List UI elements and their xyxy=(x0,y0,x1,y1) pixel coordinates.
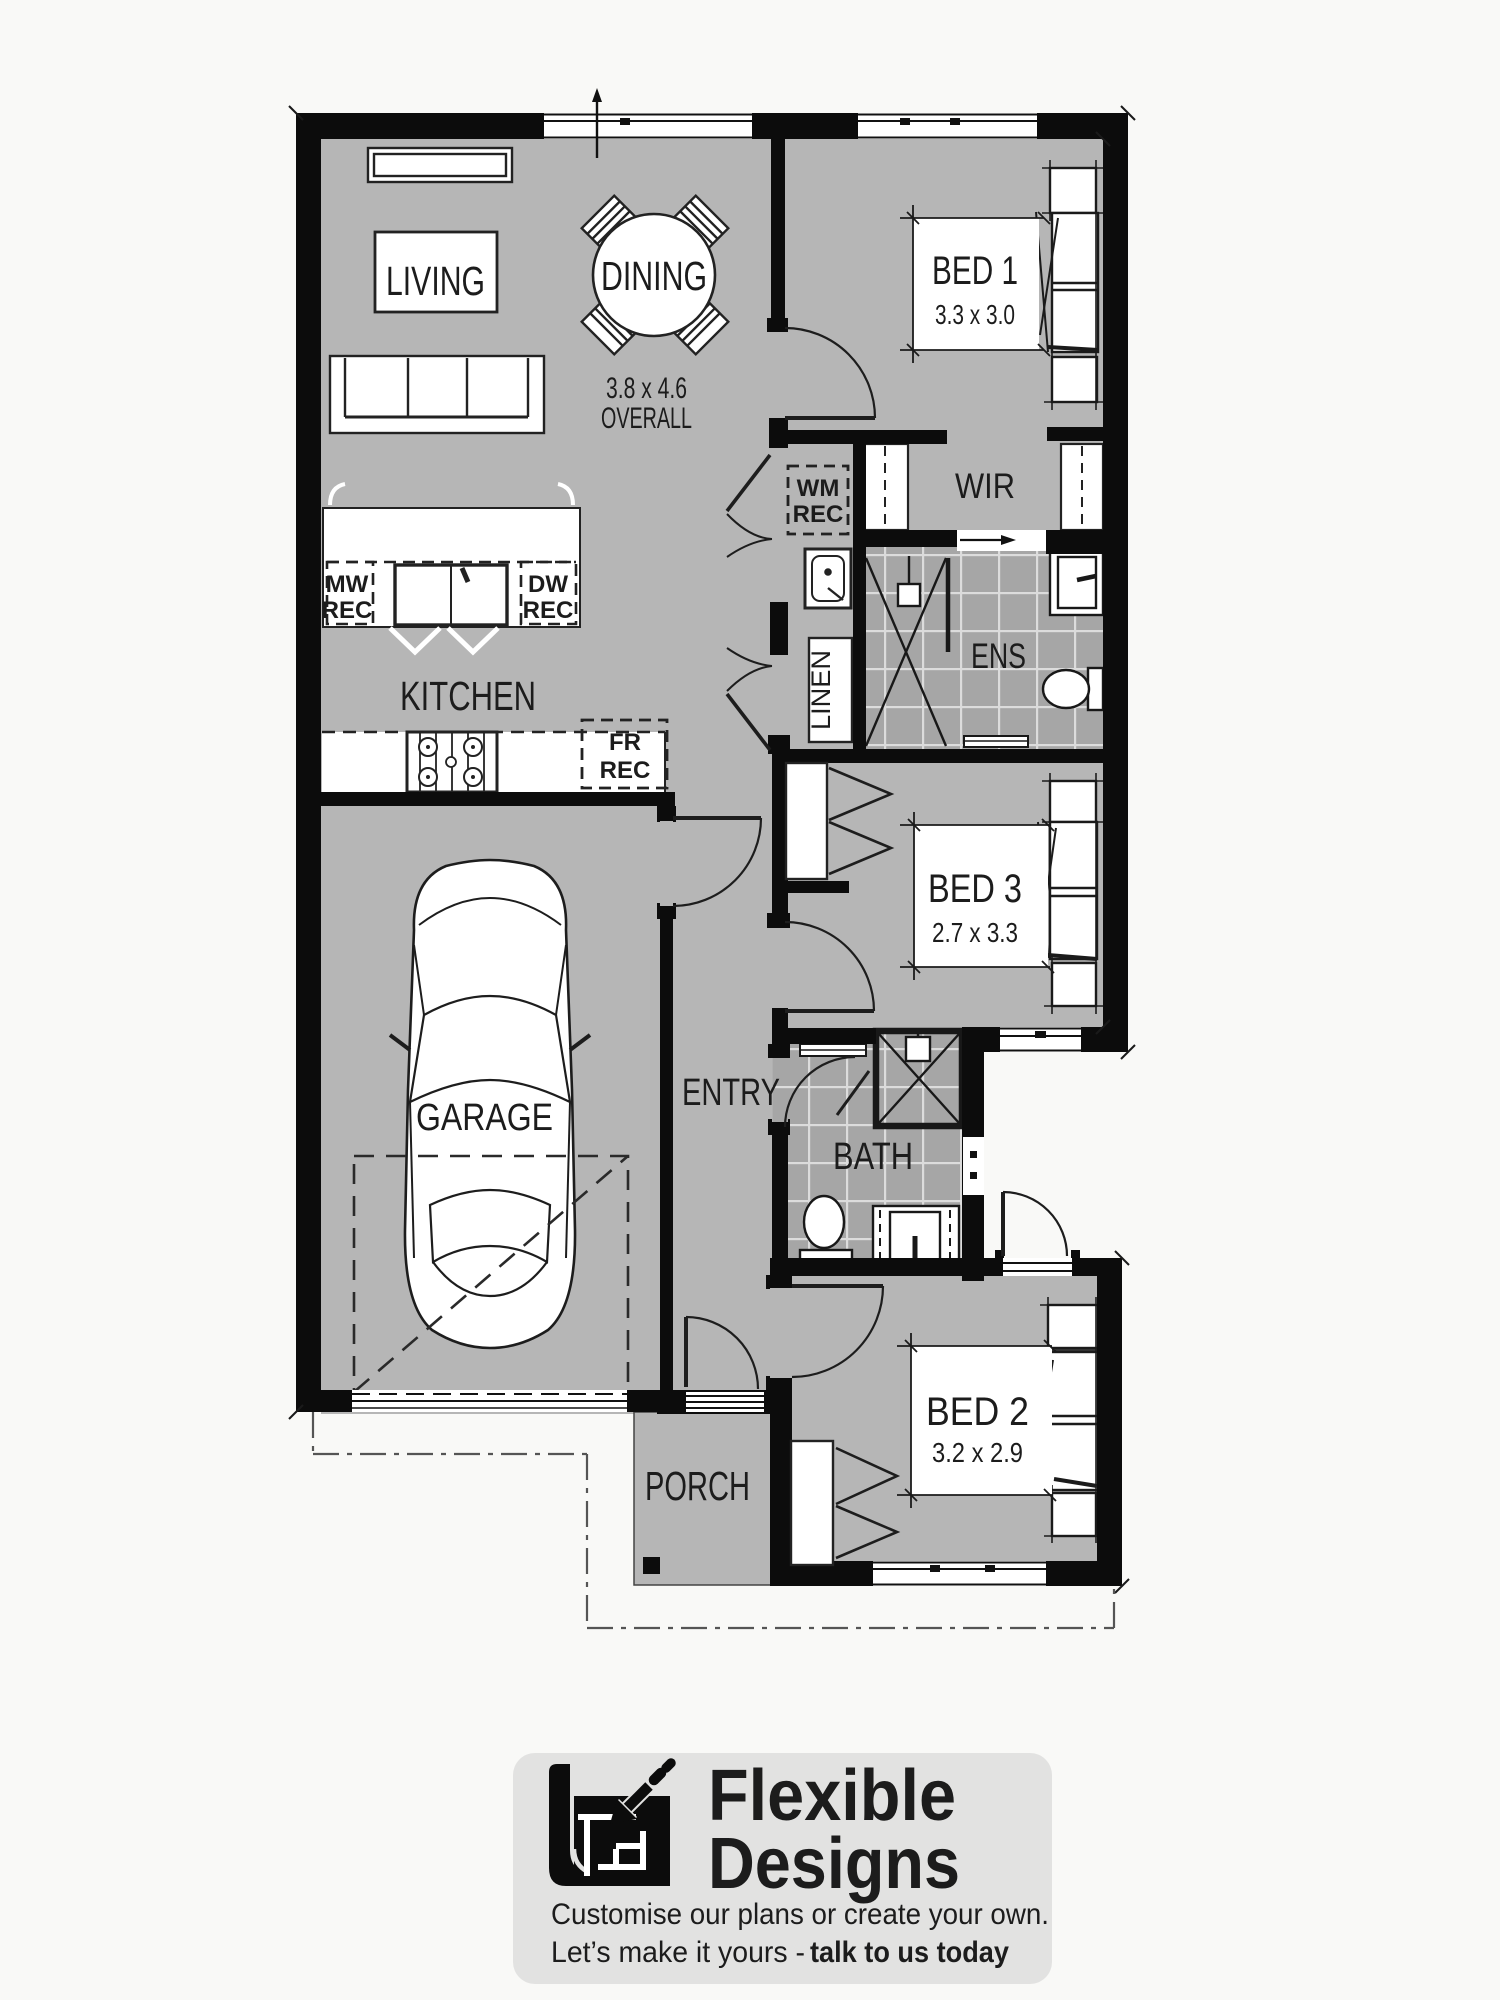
svg-text:REC: REC xyxy=(600,757,651,784)
svg-text:FR: FR xyxy=(609,729,641,756)
svg-text:REC: REC xyxy=(793,501,844,528)
svg-text:2.7 x 3.3: 2.7 x 3.3 xyxy=(932,917,1018,948)
svg-text:LINEN: LINEN xyxy=(806,650,836,730)
svg-text:ENS: ENS xyxy=(971,637,1026,676)
svg-text:BED 1: BED 1 xyxy=(932,249,1018,293)
svg-text:WM: WM xyxy=(797,475,840,502)
svg-text:ENTRY: ENTRY xyxy=(682,1072,780,1114)
svg-text:3.8 x 4.6: 3.8 x 4.6 xyxy=(606,372,687,405)
svg-text:REC: REC xyxy=(322,597,373,624)
svg-text:BATH: BATH xyxy=(833,1136,913,1178)
svg-text:DW: DW xyxy=(528,571,568,598)
svg-text:GARAGE: GARAGE xyxy=(416,1097,553,1139)
svg-text:Designs: Designs xyxy=(708,1824,960,1904)
svg-text:OVERALL: OVERALL xyxy=(601,402,692,435)
svg-text:Let’s make it yours -talk to u: Let’s make it yours -talk to us today xyxy=(551,1936,1009,1969)
svg-text:3.3 x 3.0: 3.3 x 3.0 xyxy=(935,299,1015,330)
svg-text:MW: MW xyxy=(326,571,369,598)
svg-text:Customise our plans or create: Customise our plans or create your own. xyxy=(551,1898,1049,1931)
svg-text:PORCH: PORCH xyxy=(645,1463,750,1509)
svg-text:LIVING: LIVING xyxy=(386,258,485,304)
svg-text:3.2 x 2.9: 3.2 x 2.9 xyxy=(932,1437,1023,1468)
svg-text:REC: REC xyxy=(523,597,574,624)
svg-text:WIR: WIR xyxy=(955,467,1015,506)
svg-text:KITCHEN: KITCHEN xyxy=(400,673,536,719)
svg-text:DINING: DINING xyxy=(601,253,707,299)
svg-text:BED 2: BED 2 xyxy=(926,1390,1029,1434)
svg-text:BED 3: BED 3 xyxy=(928,867,1022,911)
